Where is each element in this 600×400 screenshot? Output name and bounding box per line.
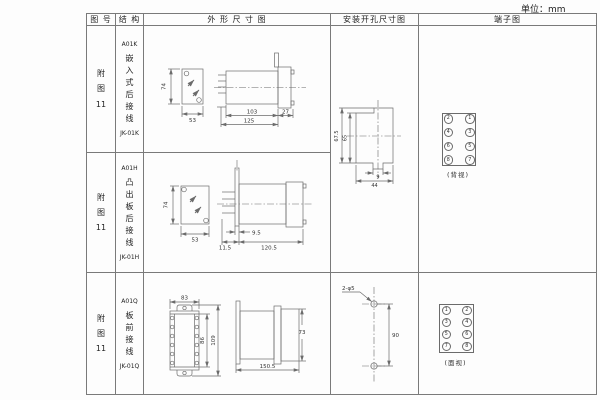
- dim-body-length: 103: [247, 110, 258, 116]
- front-view: 74 53: [164, 186, 210, 244]
- structure-label: 板前接线: [125, 310, 134, 358]
- figure-number: 附 图 11: [96, 311, 106, 357]
- side-view: 73 150.5: [236, 301, 306, 373]
- terminal-pin: 2: [444, 114, 454, 124]
- terminal-pin: 3: [442, 318, 452, 328]
- view-label-rear: (背视): [438, 169, 478, 179]
- dim-front: 11.5: [219, 246, 232, 252]
- dim-outer-height: 109: [211, 335, 217, 346]
- terminal-pin: 6: [444, 142, 454, 152]
- structure-cell-jk01k: A01K 嵌入式后接线 JK-01K: [116, 26, 144, 153]
- header-outline: 外 形 尺 寸 图: [144, 14, 331, 26]
- outline-drawing-jk01q: 83 86 109 73: [144, 273, 331, 394]
- type-code: JK-01Q: [120, 363, 140, 370]
- dim-inner-height: 86: [200, 337, 206, 344]
- terminal-pin: 8: [462, 342, 472, 352]
- terminal-pin: 8: [444, 155, 454, 165]
- front-view: 74 53: [162, 69, 204, 124]
- header-figure: 图 号: [87, 14, 116, 26]
- header-mounting: 安装开孔尺寸图: [331, 14, 419, 26]
- dim-notch: 9: [376, 175, 379, 181]
- dim-cutout-inner: 65: [343, 135, 349, 141]
- terminal-block-rear: 2 1 4 3 6 5 8 7: [442, 113, 476, 166]
- figure-number: 附 图 11: [96, 190, 106, 236]
- dim-cutout-outer: 67.5: [334, 130, 340, 141]
- view-label-front: (面视): [435, 357, 476, 367]
- dim-flange: 27: [282, 110, 289, 116]
- structure-cell-jk01q: A01Q 板前接线 JK-01Q: [116, 273, 144, 394]
- dim-hole-spacing: 90: [392, 333, 399, 339]
- terminal-cell-jk01k: 2 1 4 3 6 5 8 7 (背视): [419, 26, 596, 273]
- mounting-hole-drawing-k: 67.5 65 9 44: [331, 26, 419, 273]
- dim-plate: 9.5: [252, 231, 261, 237]
- dim-body-length: 120.5: [261, 246, 277, 252]
- terminal-pin: 5: [442, 330, 452, 340]
- model-label: A01K: [122, 41, 138, 48]
- header-structure: 结 构: [116, 14, 144, 26]
- mounting-cell-jk01k: 67.5 65 9 44: [331, 26, 419, 273]
- dim-width: 53: [192, 238, 199, 244]
- dim-width: 53: [189, 118, 196, 124]
- terminal-pin: 5: [465, 142, 475, 152]
- dim-cutout-width: 44: [371, 183, 377, 189]
- side-view: 9.5 11.5 120.5: [217, 160, 312, 252]
- outline-cell-jk01h: 74 53 9.5: [144, 153, 331, 273]
- figure-cell-jk01h: 附 图 11: [87, 153, 116, 273]
- terminal-pin: 3: [465, 128, 475, 138]
- dim-width: 83: [181, 296, 188, 302]
- figure-cell-jk01q: 附 图 11: [87, 273, 116, 394]
- terminal-pin: 7: [465, 155, 475, 165]
- terminal-pin: 4: [444, 128, 454, 138]
- dim-height: 74: [164, 201, 170, 208]
- terminal-pin: 6: [462, 330, 472, 340]
- hole-callout: 2-φ5: [342, 286, 355, 292]
- terminal-pin: 1: [442, 306, 452, 316]
- model-label: A01Q: [121, 298, 137, 305]
- mounting-cell-jk01q: 90 2-φ5: [331, 273, 419, 394]
- technical-drawing-sheet: 单位：mm 图 号 结 构 外 形 尺 寸 图 安装开孔尺寸图 端子图 附 图 …: [0, 0, 600, 400]
- structure-label: 凸出板后接线: [125, 177, 134, 249]
- type-code: JK-01H: [120, 254, 139, 261]
- figure-number: 附 图 11: [96, 66, 106, 112]
- terminal-pin: 7: [442, 342, 452, 352]
- terminal-pin: 1: [465, 114, 475, 124]
- outline-cell-jk01k: 74 53 103: [144, 26, 331, 153]
- type-code: JK-01K: [120, 130, 139, 137]
- mounting-hole-drawing-q: 90 2-φ5: [331, 273, 419, 394]
- terminal-block-front: 1 2 3 4 5 6 7 8: [439, 304, 474, 353]
- dim-height: 74: [162, 83, 168, 90]
- structure-label: 嵌入式后接线: [125, 53, 134, 125]
- terminal-pin: 4: [462, 318, 472, 328]
- outline-drawing-jk01k: 74 53 103: [144, 26, 331, 153]
- header-terminal: 端子图: [419, 14, 596, 26]
- figure-cell-jk01k: 附 图 11: [87, 26, 116, 153]
- terminal-cell-jk01q: 1 2 3 4 5 6 7 8 (面视): [419, 273, 596, 394]
- side-view: 103 27 125: [214, 53, 306, 127]
- dim-total-length: 125: [244, 119, 255, 125]
- dim-side-height: 73: [299, 330, 306, 336]
- dim-length: 150.5: [260, 364, 276, 370]
- outline-drawing-jk01h: 74 53 9.5: [144, 153, 331, 273]
- spec-table: 图 号 结 构 外 形 尺 寸 图 安装开孔尺寸图 端子图 附 图 11 A01…: [86, 13, 597, 395]
- front-view: 83 86 109: [170, 296, 221, 377]
- structure-cell-jk01h: A01H 凸出板后接线 JK-01H: [116, 153, 144, 273]
- terminal-pin: 2: [462, 306, 472, 316]
- outline-cell-jk01q: 83 86 109 73: [144, 273, 331, 394]
- model-label: A01H: [121, 165, 137, 172]
